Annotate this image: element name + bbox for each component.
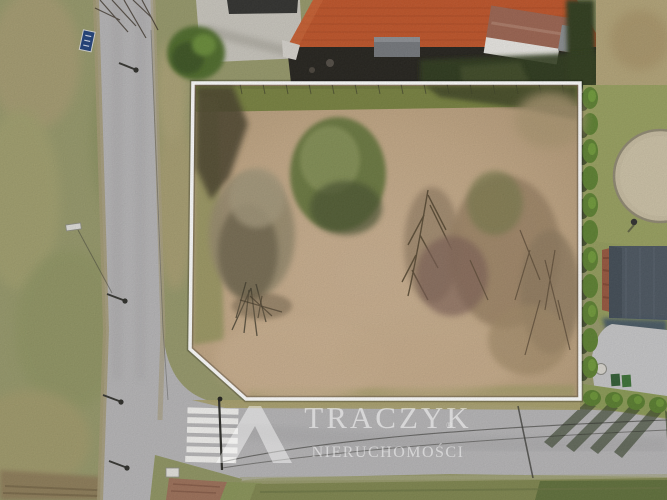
aerial-photo: TRACZYK ® NIERUCHOMOŚCI xyxy=(0,0,667,500)
aerial-photo-background xyxy=(0,0,667,500)
grain-overlay-light xyxy=(0,0,667,500)
